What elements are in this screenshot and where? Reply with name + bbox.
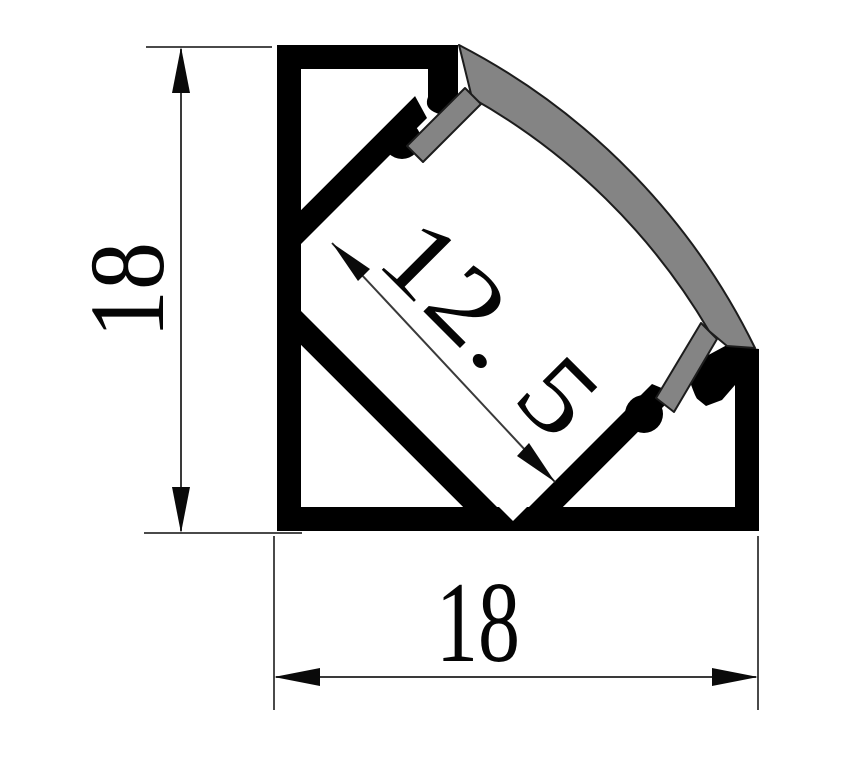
dimension-width: 18: [274, 536, 758, 710]
width-dimension-label: 18: [436, 559, 520, 686]
clip-lug-right: [625, 395, 663, 433]
height-arrow-down: [172, 487, 190, 533]
technical-drawing-canvas: 18 18 12. 5: [0, 0, 867, 760]
width-arrow-left: [274, 668, 320, 686]
profile-left-wall: [277, 45, 301, 531]
height-arrow-up: [172, 47, 190, 93]
height-dimension-label: 18: [69, 242, 187, 338]
cavity-bottom-left: [301, 345, 463, 507]
profile-drawing: 18 18 12. 5: [0, 0, 867, 760]
dimension-height: 18: [69, 47, 302, 533]
width-arrow-right: [712, 668, 758, 686]
